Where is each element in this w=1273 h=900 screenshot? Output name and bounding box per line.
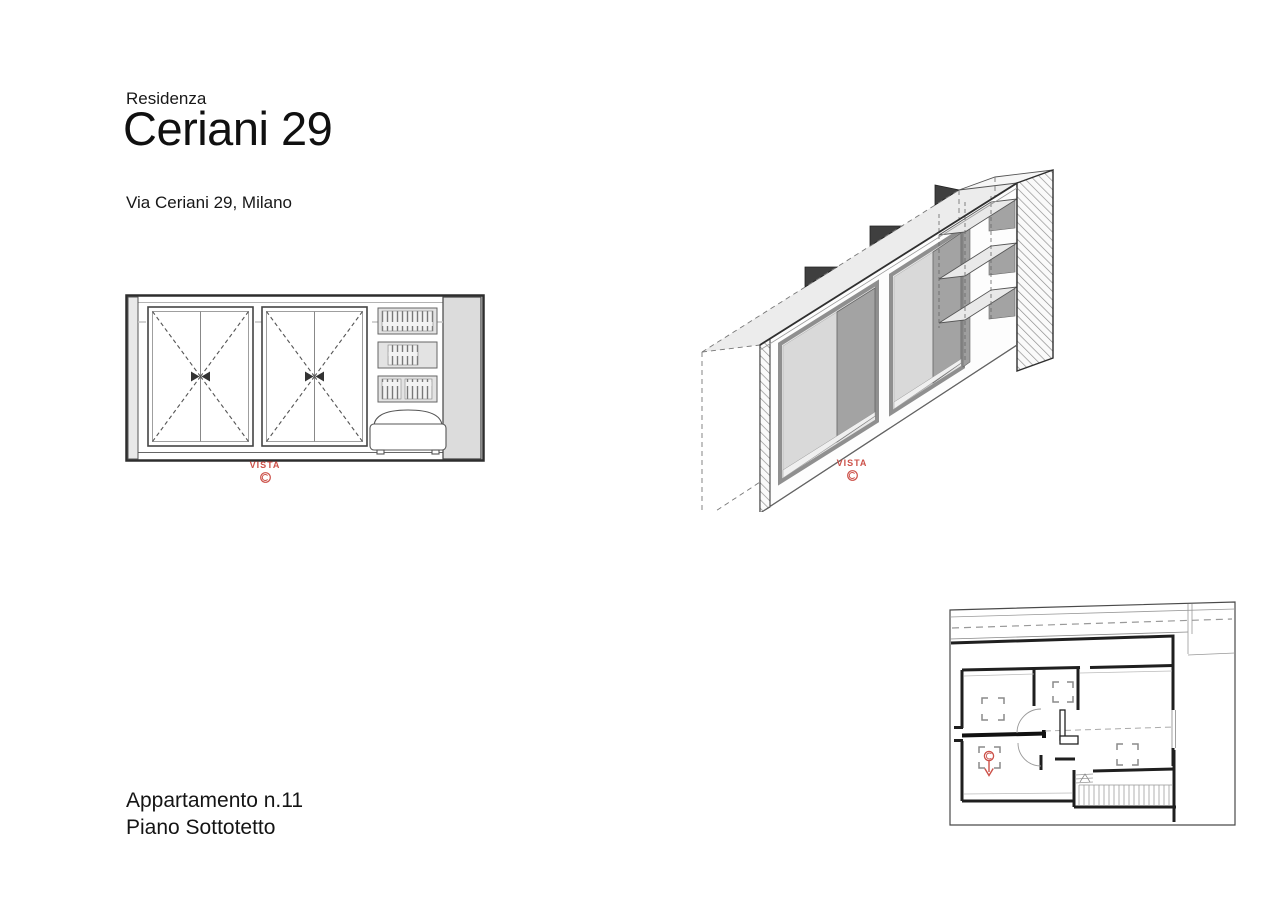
view-direction-icon [846,469,859,482]
vista-label: VISTA [250,460,281,470]
drawing-sheet: Residenza Ceriani 29 Via Ceriani 29, Mil… [0,0,1273,900]
vista-marker-axon: VISTA [820,459,884,482]
apartment-caption: Appartamento n.11 Piano Sottotetto [126,787,303,841]
elevation-drawing [125,294,485,462]
apartment-number: Appartamento n.11 [126,787,303,814]
end-pier-hatched [1017,170,1053,371]
wardrobe-door-2 [262,307,367,446]
vista-label: VISTA [837,458,868,468]
address-line: Via Ceriani 29, Milano [126,193,292,212]
floor-plan-drawing [948,598,1238,830]
armchair [370,410,446,454]
page-title: Ceriani 29 [123,103,332,155]
floor-name: Piano Sottotetto [126,814,303,841]
bookshelves [378,308,437,402]
vista-marker-elevation: VISTA [233,461,297,484]
view-direction-icon [259,471,272,484]
wardrobe-door-1 [148,307,253,446]
